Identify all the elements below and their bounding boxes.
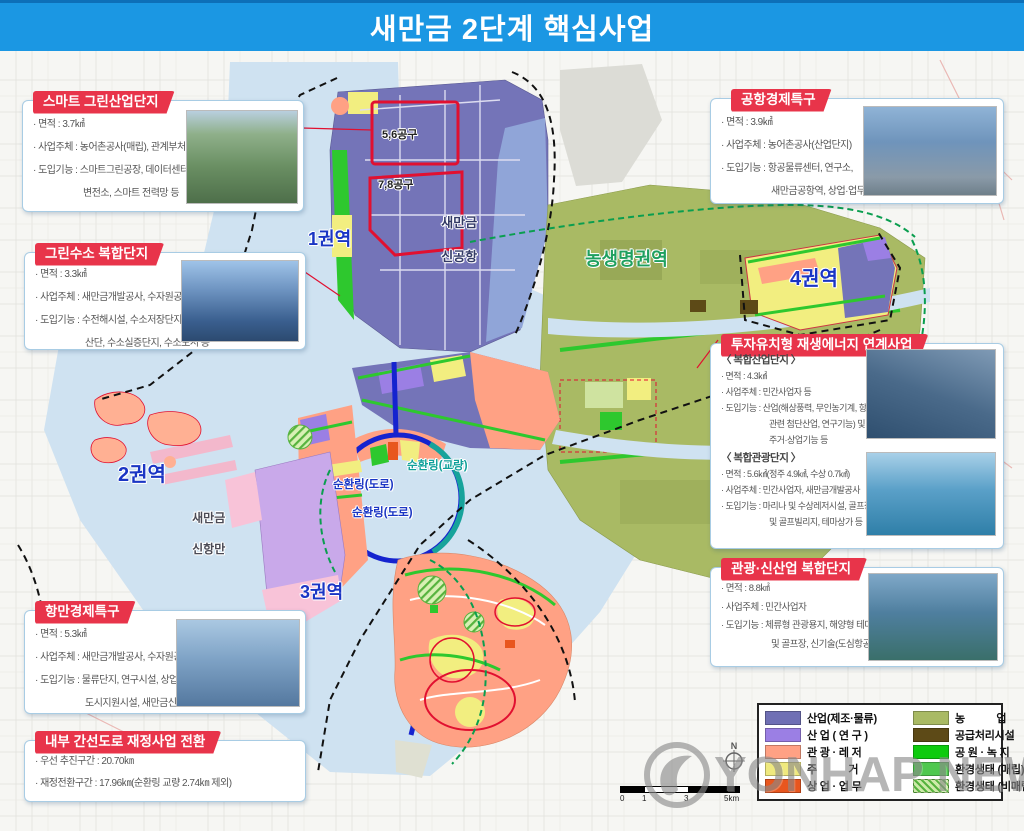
card-port-zone: 항만경제특구 · 면적 : 5.3㎢ · 사업주체 : 새만금개발공사, 수자원… [24,610,306,714]
label-district-78: 7,8공구 [378,176,414,192]
photo-airport-zone [863,106,997,196]
fact-line: · 면적 : 4.3㎢ [721,368,874,384]
card-smart-green: 스마트 그린산업단지 · 면적 : 3.7㎢ · 사업주체 : 농어촌공사(매립… [22,100,304,212]
card-invest-renewable: 투자유치형 재생에너지 연계사업 〈 복합산업단지 〉 · 면적 : 4.3㎢ … [710,343,1004,549]
fact-line: 관련 첨단산업, 연구기능) 및 [721,416,874,432]
page-title: 새만금 2단계 핵심사업 [370,6,654,48]
scale-bar-ticks: 0 1 3 5km [620,793,740,803]
fact-line: · 사업주체 : 민간사업자, 새만금개발공사 [721,482,872,498]
label-ring-road-1: 순환링(도로) [333,476,394,492]
scale-tick: 5km [724,794,739,803]
label-zone3: 3권역 [300,578,343,604]
fact-line: 변전소, 스마트 전력망 등 [33,182,211,205]
label-agri-zone: 농생명권역 [585,245,668,271]
scale-tick: 1 [642,794,646,803]
fact-line: · 면적 : 5.6㎢(정주 4.9㎢, 수상 0.7㎢) [721,466,872,482]
scale-tick: 0 [620,794,624,803]
card-inner-road: 내부 간선도로 재정사업 전환 · 우선 추진구간 : 20.70㎞ · 재정전… [24,740,306,802]
photo-invest-industrial [866,349,996,439]
section-heading: 〈 복합산업단지 〉 [721,352,874,368]
legend-label: 상 업 · 업 무 [801,778,913,794]
scale-bar-track [620,786,740,793]
legend-swatch-supply-facility [913,728,949,742]
legend-swatch-residential [765,762,801,776]
fact-line: 주거·상업기능 등 [721,432,874,448]
card-tourism-newindustry: 관광·신산업 복합단지 · 면적 : 8.8㎢ · 사업주체 : 민간사업자 ·… [710,567,1004,667]
legend-row: 산업(제조·물류) 농 업 [765,710,995,726]
legend-row: 상 업 · 업 무 환경생태 (비매립) [765,778,995,794]
card-airport-zone: 공항경제특구 · 면적 : 3.9㎢ · 사업주체 : 농어촌공사(산업단지) … [710,98,1004,204]
compass-icon [723,750,745,772]
photo-port-zone [176,619,300,707]
legend-label: 공급처리시설 [949,727,1015,743]
fact-line: · 사업주체 : 민간사업자 [721,599,889,618]
legend-swatch-industry-research [765,728,801,742]
legend-label: 관 광 · 레 저 [801,744,913,760]
legend-label: 주 거 [801,761,913,777]
legend-swatch-eco-unreclaimed [913,779,949,793]
scale-tick: 3 [684,794,688,803]
fact-line: 및 골프빌리지, 테마상가 등 [721,514,872,530]
scale-bar: 0 1 3 5km [620,786,740,803]
fact-line: · 도입기능 : 스마트그린공장, 데이터센터, 통합 [33,159,211,182]
label-zone2: 2권역 [118,458,166,487]
legend-label: 환경생태 (매립) [949,761,1024,777]
label-zone1: 1권역 [308,225,351,251]
label-new-airport: 새만금 신공항 [420,198,484,282]
legend-swatch-industry-logistics [765,711,801,725]
card-smart-green-title: 스마트 그린산업단지 [33,91,175,114]
legend-row: 관 광 · 레 저 공 원 · 녹 지 [765,744,995,760]
legend-label: 산 업 ( 연 구 ) [801,727,913,743]
photo-tourism-newindustry [868,573,998,661]
legend-swatch-agriculture [913,711,949,725]
card-port-zone-title: 항만경제특구 [35,601,136,624]
fact-line: · 사업주체 : 민간사업자 등 [721,384,874,400]
legend-swatch-commercial [765,779,801,793]
fact-line: · 도입기능 : 마리나 및 수상레저시설, 골프장 [721,498,872,514]
label-ring-road-2: 순환링(도로) [352,504,413,520]
fact-line: · 재정전환구간 : 17.96㎞(순환링 교량 2.74㎞ 제외) [35,773,232,795]
photo-green-hydrogen [181,260,299,342]
card-tourism-newindustry-title: 관광·신산업 복합단지 [721,558,867,581]
photo-invest-tourism [866,452,996,536]
compass-north-label: N [723,742,745,750]
card-airport-zone-title: 공항경제특구 [731,89,832,112]
fact-line: · 도입기능 : 체류형 관광용지, 해양형 테마파크 [721,617,889,636]
fact-line: · 면적 : 8.8㎢ [721,580,889,599]
legend-swatch-eco-reclaimed [913,762,949,776]
card-green-hydrogen: 그린수소 복합단지 · 면적 : 3.3㎢ · 사업주체 : 새만금개발공사, … [24,252,306,350]
legend-row: 산 업 ( 연 구 ) 공급처리시설 [765,727,995,743]
label-new-seaport: 새만금 신항만 [172,495,232,573]
title-banner: 새만금 2단계 핵심사업 [0,0,1024,51]
legend-label: 농 업 [949,710,1006,726]
legend-label: 환경생태 (비매립) [949,778,1024,794]
legend-label: 산업(제조·물류) [801,710,913,726]
section-heading: 〈 복합관광단지 〉 [721,450,872,466]
label-district-56: 5,6공구 [382,126,418,142]
map-legend: 산업(제조·물류) 농 업 산 업 ( 연 구 ) 공급처리시설 관 광 · 레… [757,703,1003,801]
legend-swatch-tourism-leisure [765,745,801,759]
compass-north: N [723,742,745,777]
legend-label: 공 원 · 녹 지 [949,744,1010,760]
fact-line: · 사업주체 : 농어촌공사(매립), 관계부처 [33,136,211,159]
label-ring-bridge: 순환링(교량) [407,457,468,473]
fact-line: · 우선 추진구간 : 20.70㎞ [35,751,232,773]
infographic-root: 새만금 2단계 핵심사업 1권역 2권역 3권역 4권역 농생명권역 새만금 신… [0,0,1024,831]
fact-line: 및 골프장, 신기술(도심항공) 등 [721,636,889,655]
fact-line: · 도입기능 : 산업(해상풍력, 무인농기계, 항공 [721,400,874,416]
legend-row: 주 거 환경생태 (매립) [765,761,995,777]
photo-smart-green [186,110,298,204]
legend-swatch-park-green [913,745,949,759]
fact-line: · 면적 : 3.7㎢ [33,113,211,136]
label-zone4: 4권역 [790,262,838,291]
